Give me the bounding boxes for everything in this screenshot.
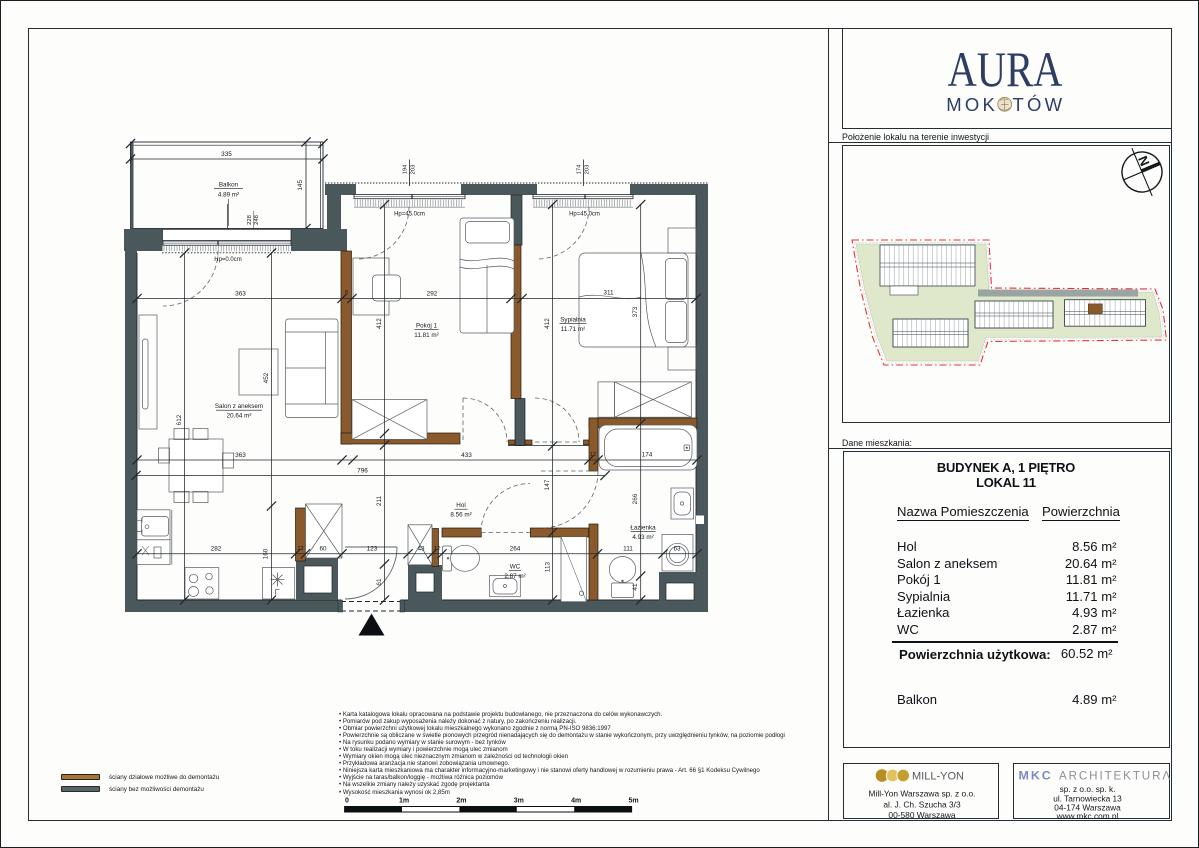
svg-text:248: 248 — [254, 215, 260, 225]
svg-text:412: 412 — [376, 318, 383, 329]
svg-text:2.87 m²: 2.87 m² — [504, 573, 525, 580]
svg-text:Hp=45.0cm: Hp=45.0cm — [394, 212, 425, 218]
svg-text:Hp=0.0cm: Hp=0.0cm — [214, 257, 242, 263]
svg-text:123: 123 — [367, 546, 378, 553]
svg-text:228: 228 — [247, 215, 253, 225]
svg-text:63: 63 — [673, 546, 681, 553]
svg-text:20.64 m²: 20.64 m² — [227, 413, 252, 420]
svg-text:60: 60 — [319, 546, 327, 553]
svg-text:113: 113 — [545, 561, 552, 572]
svg-text:147: 147 — [544, 479, 551, 490]
svg-text:145: 145 — [297, 180, 304, 191]
svg-text:433: 433 — [461, 452, 472, 459]
svg-text:al. J. Ch. Szucha 3/3: al. J. Ch. Szucha 3/3 — [883, 799, 961, 809]
svg-text:12: 12 — [297, 546, 303, 552]
svg-text:Sypialnia: Sypialnia — [560, 317, 586, 324]
svg-text:174: 174 — [576, 164, 582, 174]
svg-text:111: 111 — [623, 546, 633, 553]
svg-text:Pokój 1: Pokój 1 — [416, 323, 438, 330]
svg-text:194: 194 — [403, 164, 409, 174]
svg-text:796: 796 — [357, 468, 368, 475]
svg-text:Mill-Yon Warszawa sp. z o.o.: Mill-Yon Warszawa sp. z o.o. — [869, 788, 976, 798]
svg-text:160: 160 — [263, 548, 270, 559]
svg-text:MOK: MOK — [946, 94, 998, 115]
svg-text:Balkon: Balkon — [219, 181, 239, 188]
svg-text:203: 203 — [411, 165, 417, 175]
svg-text:266: 266 — [632, 493, 639, 504]
svg-text:264: 264 — [510, 546, 521, 553]
svg-text:373: 373 — [632, 306, 639, 317]
svg-text:211: 211 — [376, 495, 383, 506]
svg-text:4.89 m²: 4.89 m² — [218, 191, 239, 198]
svg-text:12: 12 — [590, 452, 596, 458]
svg-text:TÓW: TÓW — [1013, 94, 1066, 115]
svg-text:www.mkc.com.pl: www.mkc.com.pl — [1056, 811, 1119, 819]
svg-text:412: 412 — [544, 318, 551, 329]
svg-text:12: 12 — [434, 546, 440, 552]
svg-text:311: 311 — [603, 290, 614, 297]
svg-text:MILL-YON: MILL-YON — [912, 770, 964, 782]
svg-text:AURA: AURA — [948, 41, 1063, 97]
svg-text:5m: 5m — [629, 798, 639, 805]
svg-text:Salon z aneksem: Salon z aneksem — [215, 403, 263, 410]
svg-text:363: 363 — [235, 452, 246, 459]
svg-text:ARCHITEKTURΛ: ARCHITEKTURΛ — [1059, 769, 1170, 782]
svg-text:4m: 4m — [571, 798, 581, 805]
svg-text:8.56 m²: 8.56 m² — [450, 512, 471, 519]
svg-text:363: 363 — [235, 291, 246, 298]
svg-text:61: 61 — [376, 578, 383, 586]
svg-text:Łazienka: Łazienka — [630, 525, 656, 532]
svg-text:11.71 m²: 11.71 m² — [561, 326, 585, 333]
svg-text:Hol: Hol — [456, 502, 465, 509]
svg-text:4.93 m²: 4.93 m² — [632, 534, 653, 541]
svg-text:335: 335 — [221, 151, 232, 158]
svg-text:2m: 2m — [456, 798, 466, 805]
svg-text:3m: 3m — [514, 798, 524, 805]
svg-text:612: 612 — [176, 414, 183, 425]
svg-text:41: 41 — [632, 583, 639, 591]
svg-text:11.81 m²: 11.81 m² — [414, 332, 438, 339]
svg-text:203: 203 — [584, 165, 590, 175]
svg-text:8: 8 — [345, 290, 348, 296]
svg-text:00-580 Warszawa: 00-580 Warszawa — [888, 810, 956, 819]
svg-text:174: 174 — [642, 452, 653, 459]
svg-text:Hp=45.0cm: Hp=45.0cm — [569, 212, 600, 218]
svg-text:292: 292 — [427, 291, 438, 298]
svg-text:1m: 1m — [399, 798, 409, 805]
svg-text:43: 43 — [417, 546, 425, 553]
svg-text:452: 452 — [263, 372, 270, 383]
svg-text:282: 282 — [211, 546, 222, 553]
svg-text:MKC: MKC — [1019, 768, 1053, 782]
svg-text:0: 0 — [345, 798, 349, 805]
svg-text:WC: WC — [510, 564, 521, 571]
